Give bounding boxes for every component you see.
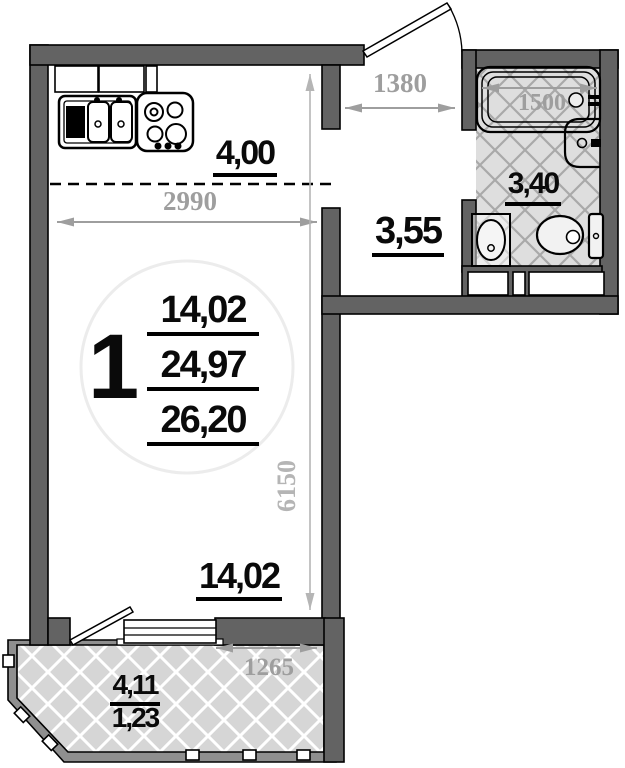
floor-plan-page: 4,00 2990 1380 1500 3,55 3,40 1 14,02 24…	[0, 0, 625, 768]
unit-number: 1	[88, 334, 136, 400]
living-room-area-label: 14,02	[187, 558, 291, 601]
dim-kitchen-width: 2990	[142, 188, 238, 215]
dim-hallway-width: 1380	[356, 70, 444, 97]
total-living-area-value: 24,97	[147, 346, 259, 391]
living-area-value: 14,02	[147, 291, 259, 336]
bathroom-area-value: 3,40	[505, 169, 561, 206]
dim-room-length: 6150	[274, 439, 300, 533]
balcony-area-value: 4,11	[110, 671, 161, 706]
toilet-icon	[537, 214, 603, 258]
balcony-area-label: 4,11	[104, 671, 166, 706]
stove-icon	[137, 93, 193, 151]
balcony-window-icon	[117, 620, 223, 645]
vent-shafts	[468, 272, 604, 295]
living-room-area-value: 14,02	[196, 558, 282, 601]
kitchen-area-label: 4,00	[197, 136, 293, 177]
total-area-value: 26,20	[147, 401, 259, 446]
hallway-area-value: 3,55	[372, 212, 444, 257]
dim-balcony-window-width: 1265	[228, 655, 310, 680]
kitchen-sink-icon	[59, 96, 136, 148]
apartment-areas-stack: 14,02 24,97 26,20	[147, 291, 259, 456]
entrance-door-icon	[363, 3, 462, 57]
bathroom-area-label: 3,40	[498, 169, 568, 206]
balcony-reduced-area-label: 1,23	[97, 704, 173, 732]
kitchen-cabinets	[55, 66, 157, 92]
hallway-area-label: 3,55	[358, 212, 458, 257]
kitchen-area-value: 4,00	[213, 136, 277, 177]
pedestal-sink-icon	[472, 214, 510, 266]
dim-bathtub-length: 1500	[506, 91, 578, 115]
